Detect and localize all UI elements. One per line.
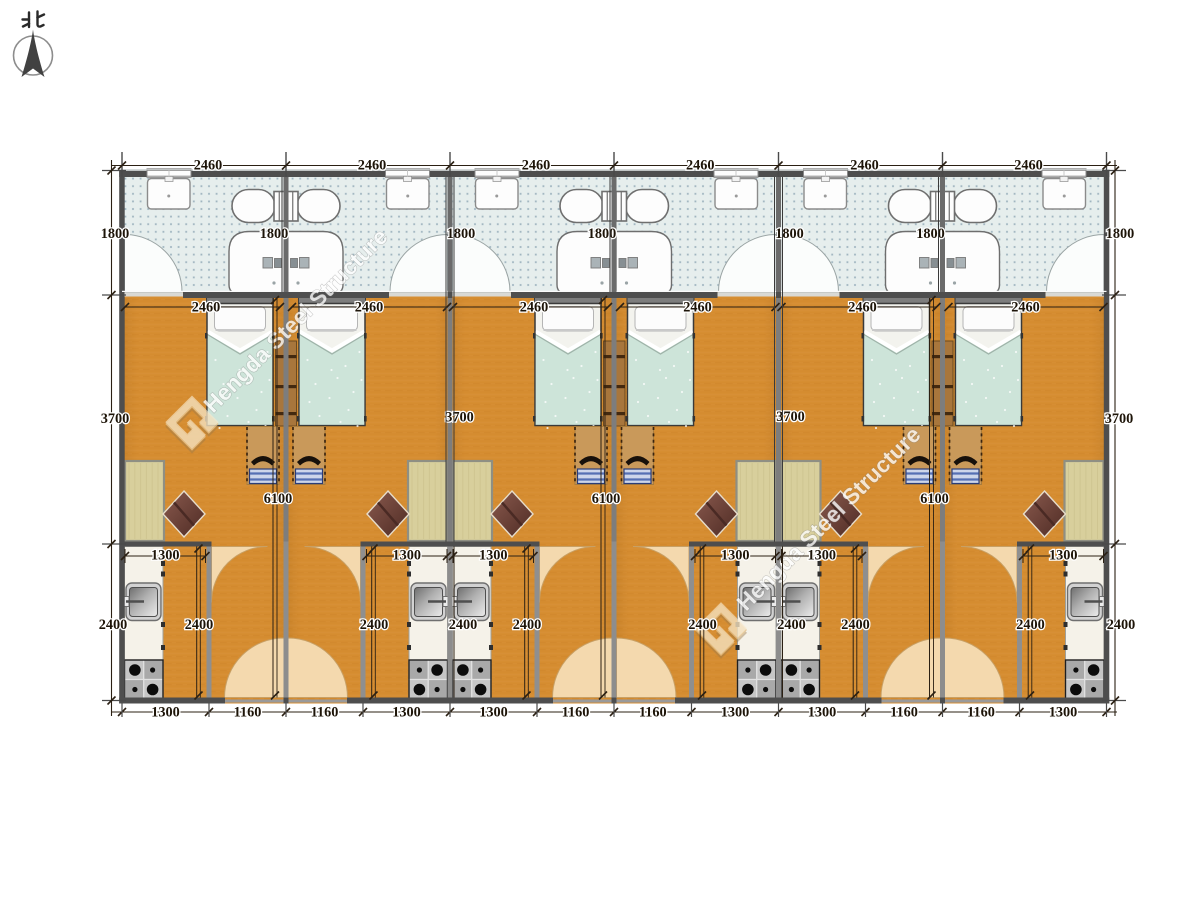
svg-text:1300: 1300 [1049,705,1078,721]
svg-text:1160: 1160 [234,705,262,721]
svg-text:3700: 3700 [101,411,130,427]
svg-text:1300: 1300 [392,548,421,564]
svg-text:1160: 1160 [311,705,339,721]
svg-text:2400: 2400 [99,617,128,633]
svg-text:2400: 2400 [1016,617,1045,633]
svg-text:1300: 1300 [721,705,750,721]
svg-text:2400: 2400 [360,617,389,633]
svg-text:2400: 2400 [688,617,717,633]
svg-text:2460: 2460 [850,158,879,174]
svg-text:1300: 1300 [808,705,837,721]
svg-text:2460: 2460 [355,300,384,316]
svg-text:3700: 3700 [1105,411,1134,427]
svg-text:2400: 2400 [1107,617,1136,633]
svg-text:1300: 1300 [479,548,508,564]
svg-text:2460: 2460 [192,300,221,316]
svg-text:2460: 2460 [522,158,551,174]
svg-text:1160: 1160 [639,705,667,721]
svg-text:2400: 2400 [841,617,870,633]
svg-text:1300: 1300 [151,548,180,564]
svg-text:2400: 2400 [777,617,806,633]
svg-text:1300: 1300 [1049,548,1078,564]
svg-text:1800: 1800 [588,226,617,242]
svg-text:6100: 6100 [920,491,949,507]
svg-text:2460: 2460 [1014,158,1043,174]
svg-text:1160: 1160 [967,705,995,721]
svg-text:2400: 2400 [185,617,214,633]
svg-text:1300: 1300 [721,548,750,564]
svg-text:6100: 6100 [592,491,621,507]
svg-text:1300: 1300 [479,705,508,721]
svg-text:1160: 1160 [562,705,590,721]
svg-text:1160: 1160 [890,705,918,721]
svg-text:2460: 2460 [848,300,877,316]
svg-text:2400: 2400 [449,617,478,633]
svg-text:2460: 2460 [520,300,549,316]
svg-text:1800: 1800 [1106,226,1135,242]
svg-text:3700: 3700 [445,410,474,426]
svg-text:1800: 1800 [101,226,130,242]
svg-text:2460: 2460 [1011,300,1040,316]
svg-text:1300: 1300 [807,548,836,564]
svg-text:2460: 2460 [686,158,715,174]
svg-text:1300: 1300 [392,705,421,721]
svg-text:1800: 1800 [447,226,476,242]
svg-text:3700: 3700 [776,409,805,425]
svg-text:1800: 1800 [260,226,289,242]
svg-text:1800: 1800 [916,226,945,242]
svg-text:2460: 2460 [194,158,223,174]
svg-text:2460: 2460 [358,158,387,174]
svg-text:1300: 1300 [151,705,180,721]
svg-text:1800: 1800 [775,226,804,242]
svg-text:2460: 2460 [683,300,712,316]
svg-text:6100: 6100 [264,491,293,507]
svg-text:2400: 2400 [513,617,542,633]
